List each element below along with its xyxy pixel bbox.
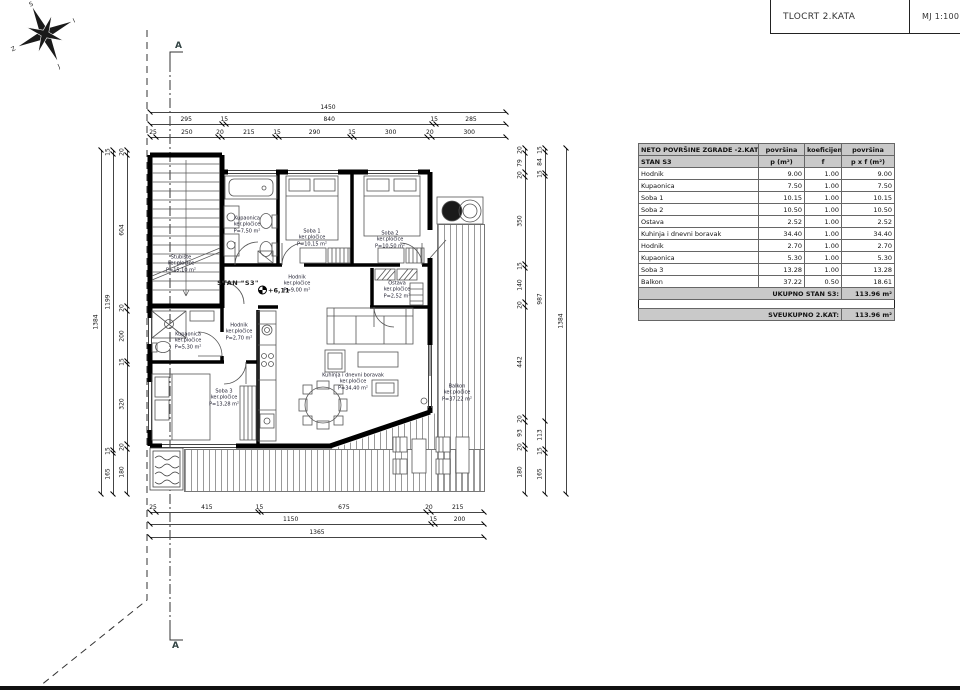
dimension-line: [150, 512, 484, 513]
dimension-line: [545, 148, 546, 494]
dim-label: 215: [243, 129, 254, 136]
dim-label: 987: [537, 293, 544, 304]
cell-value: 7.50: [842, 180, 895, 192]
dim-label: 290: [309, 129, 320, 136]
dim-label: 295: [180, 116, 191, 123]
cell-value: 2.52: [759, 216, 805, 228]
cell-room: Soba 2: [639, 204, 759, 216]
title-block: TLOCRT 2.KATA MJ 1:100: [770, 0, 960, 34]
scale-label: MJ 1:100: [910, 0, 960, 33]
dim-label: 200: [454, 516, 465, 523]
table-row: Hodnik9.001.009.00: [639, 168, 895, 180]
dim-label: 20: [119, 443, 126, 451]
dim-label: 15: [429, 516, 437, 523]
dim-label: 15: [256, 504, 264, 511]
dim-label: 300: [385, 129, 396, 136]
dim-label: 20: [517, 301, 524, 309]
dimension-line: [566, 148, 567, 494]
drawing-sheet: S I J Z: [0, 0, 960, 690]
cell-value: 7.50: [759, 180, 805, 192]
dim-label: 415: [201, 504, 212, 511]
dim-label: 180: [517, 466, 524, 477]
dim-label: 165: [537, 468, 544, 479]
grand-label: SVEUKUPNO 2.KAT:: [639, 309, 842, 321]
cell-room: Hodnik: [639, 168, 759, 180]
area-table: NETO POVRŠINE ZGRADE -2.KAT površina koe…: [638, 143, 895, 321]
dim-label: 180: [119, 466, 126, 477]
dim-label: 15: [105, 448, 112, 456]
dim-label: 1150: [283, 516, 298, 523]
cell-value: 2.70: [842, 240, 895, 252]
dimension-line: [150, 137, 506, 138]
cell-value: 2.52: [842, 216, 895, 228]
total-label: UKUPNO STAN S3:: [639, 288, 842, 300]
table-row: Kupaonica5.301.005.30: [639, 252, 895, 264]
dim-label: 604: [119, 225, 126, 236]
dim-label: 442: [517, 356, 524, 367]
dim-label: 15: [348, 129, 356, 136]
dim-label: 285: [465, 116, 476, 123]
cell-room: Hodnik: [639, 240, 759, 252]
dim-label: 15: [517, 262, 524, 270]
cell-value: 5.30: [842, 252, 895, 264]
dim-label: 165: [105, 468, 112, 479]
cell-value: 13.28: [842, 264, 895, 276]
plan-title: TLOCRT 2.KATA: [771, 0, 910, 33]
dim-label: 20: [517, 415, 524, 423]
table-row: Soba 110.151.0010.15: [639, 192, 895, 204]
dim-label: 79: [517, 159, 524, 167]
sheet-bottom-border: [0, 686, 960, 690]
cell-value: 1.00: [805, 228, 842, 240]
dimension-line: [101, 150, 102, 494]
cell-room: Ostava: [639, 216, 759, 228]
dim-label: 1384: [93, 314, 100, 329]
dim-label: 113: [537, 430, 544, 441]
cell-value: 37.22: [759, 276, 805, 288]
dimension-line: [127, 150, 128, 494]
dim-label: 300: [463, 129, 474, 136]
cell-value: 1.00: [805, 216, 842, 228]
dim-label: 15: [537, 447, 544, 455]
cell-value: 1.00: [805, 180, 842, 192]
dim-label: 20: [119, 149, 126, 157]
dim-label: 675: [338, 504, 349, 511]
cell-value: 1.00: [805, 240, 842, 252]
dimension-line: [150, 112, 506, 113]
table-row: Soba 210.501.0010.50: [639, 204, 895, 216]
dim-label: 15: [105, 148, 112, 156]
dimension-layer: 1450295158401528525250202151529015300203…: [0, 0, 960, 690]
cell-room: Balkon: [639, 276, 759, 288]
cell-value: 34.40: [759, 228, 805, 240]
cell-value: 10.15: [759, 192, 805, 204]
table-row: Balkon37.220.5018.61: [639, 276, 895, 288]
total-value: 113.96 m²: [842, 288, 895, 300]
cell-value: 34.40: [842, 228, 895, 240]
grand-value: 113.96 m²: [842, 309, 895, 321]
cell-room: Kupaonica: [639, 180, 759, 192]
dim-label: 15: [273, 129, 281, 136]
dim-label: 840: [323, 116, 334, 123]
cell-value: 13.28: [759, 264, 805, 276]
dimension-line: [150, 124, 506, 125]
dim-label: 20: [517, 147, 524, 155]
table-body: Hodnik9.001.009.00Kupaonica7.501.007.50S…: [639, 168, 895, 288]
dim-label: 200: [119, 330, 126, 341]
cell-value: 18.61: [842, 276, 895, 288]
dim-label: 20: [517, 171, 524, 179]
table-total-row: UKUPNO STAN S3: 113.96 m²: [639, 288, 895, 300]
dimension-line: [150, 537, 484, 538]
dim-label: 25: [149, 129, 157, 136]
cell-room: Kuhinja i dnevni boravak: [639, 228, 759, 240]
cell-room: Soba 3: [639, 264, 759, 276]
dim-label: 20: [216, 129, 224, 136]
cell-value: 0.50: [805, 276, 842, 288]
cell-value: 9.00: [842, 168, 895, 180]
dimension-line: [525, 148, 526, 494]
dim-label: 140: [517, 279, 524, 290]
dim-label: 25: [149, 504, 157, 511]
dimension-line: [113, 150, 114, 494]
cell-value: 1.00: [805, 264, 842, 276]
table-subheader-row: STAN S3 p (m²) f p x f (m²): [639, 156, 895, 168]
table-title: NETO POVRŠINE ZGRADE -2.KAT: [639, 144, 759, 156]
dim-label: 1365: [309, 529, 324, 536]
cell-value: 1.00: [805, 252, 842, 264]
cell-value: 1.00: [805, 168, 842, 180]
dim-label: 93: [517, 429, 524, 437]
dim-label: 20: [426, 129, 434, 136]
dim-label: 350: [517, 215, 524, 226]
cell-value: 2.70: [759, 240, 805, 252]
cell-value: 1.00: [805, 192, 842, 204]
dim-label: 1384: [558, 313, 565, 328]
table-row: Soba 313.281.0013.28: [639, 264, 895, 276]
cell-value: 1.00: [805, 204, 842, 216]
table-row: Kupaonica7.501.007.50: [639, 180, 895, 192]
cell-value: 10.15: [842, 192, 895, 204]
table-row: Ostava2.521.002.52: [639, 216, 895, 228]
dim-label: 215: [452, 504, 463, 511]
dim-label: 15: [537, 146, 544, 154]
cell-room: Soba 1: [639, 192, 759, 204]
cell-value: 10.50: [759, 204, 805, 216]
dim-label: 15: [119, 359, 126, 367]
dim-label: 20: [119, 304, 126, 312]
table-row: Hodnik2.701.002.70: [639, 240, 895, 252]
table-row: Kuhinja i dnevni boravak34.401.0034.40: [639, 228, 895, 240]
dim-label: 20: [517, 443, 524, 451]
dim-label: 1450: [320, 104, 335, 111]
dim-label: 20: [425, 504, 433, 511]
cell-value: 5.30: [759, 252, 805, 264]
table-grand-row: SVEUKUPNO 2.KAT: 113.96 m²: [639, 309, 895, 321]
cell-room: Kupaonica: [639, 252, 759, 264]
table-gap-row: [639, 300, 895, 309]
dim-label: 1199: [105, 294, 112, 309]
dim-label: 15: [430, 116, 438, 123]
dim-label: 15: [537, 171, 544, 179]
table-header-row: NETO POVRŠINE ZGRADE -2.KAT površina koe…: [639, 144, 895, 156]
cell-value: 9.00: [759, 168, 805, 180]
dim-label: 250: [181, 129, 192, 136]
dim-label: 320: [119, 398, 126, 409]
cell-value: 10.50: [842, 204, 895, 216]
dim-label: 15: [220, 116, 228, 123]
dim-label: 84: [537, 158, 544, 166]
